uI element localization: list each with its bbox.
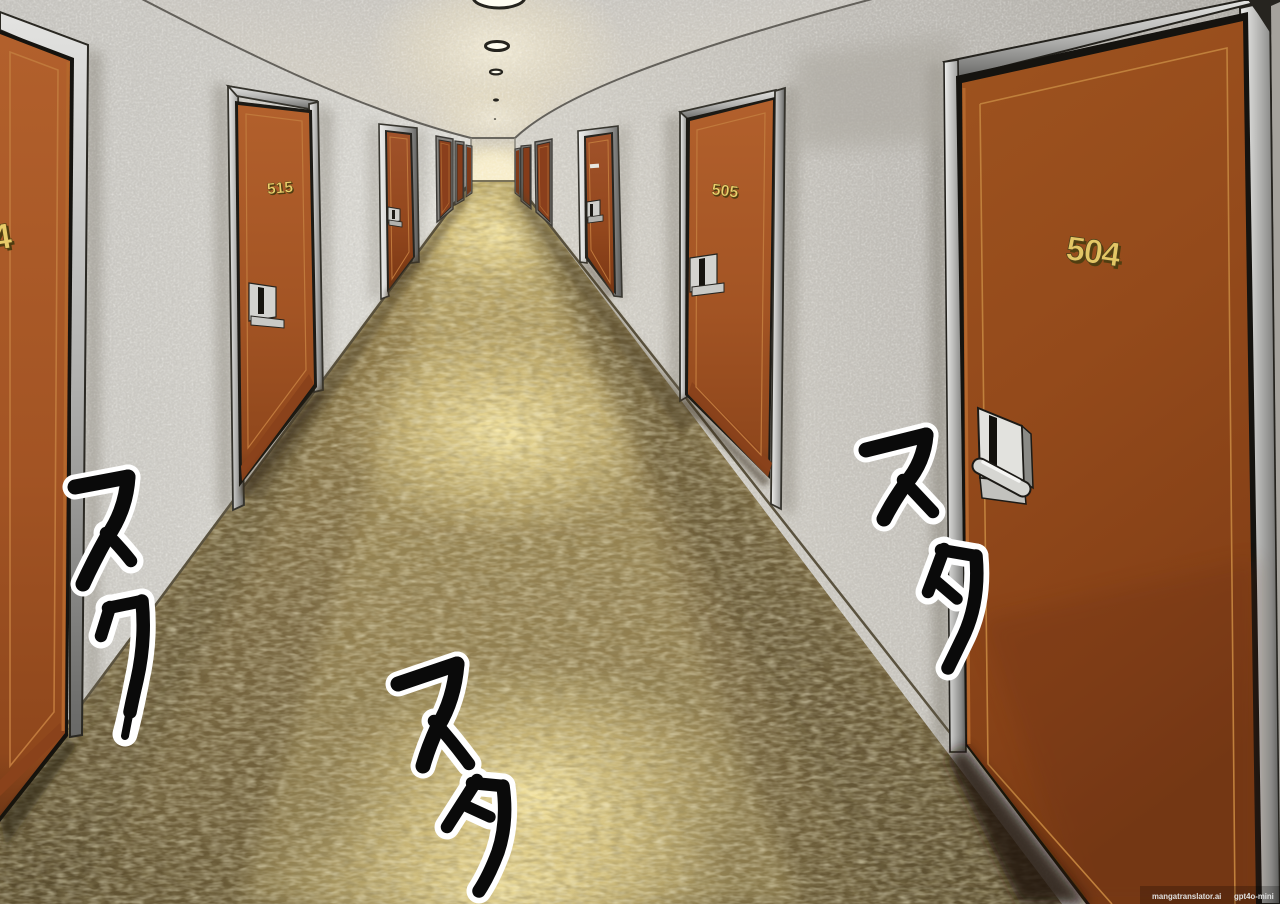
- svg-text:515: 515: [266, 179, 294, 198]
- svg-text:mangatranslator.ai: mangatranslator.ai: [1152, 892, 1221, 901]
- svg-text:504: 504: [1064, 229, 1124, 274]
- svg-text:505: 505: [711, 181, 740, 201]
- svg-text:gpt4o-mini: gpt4o-mini: [1234, 892, 1274, 901]
